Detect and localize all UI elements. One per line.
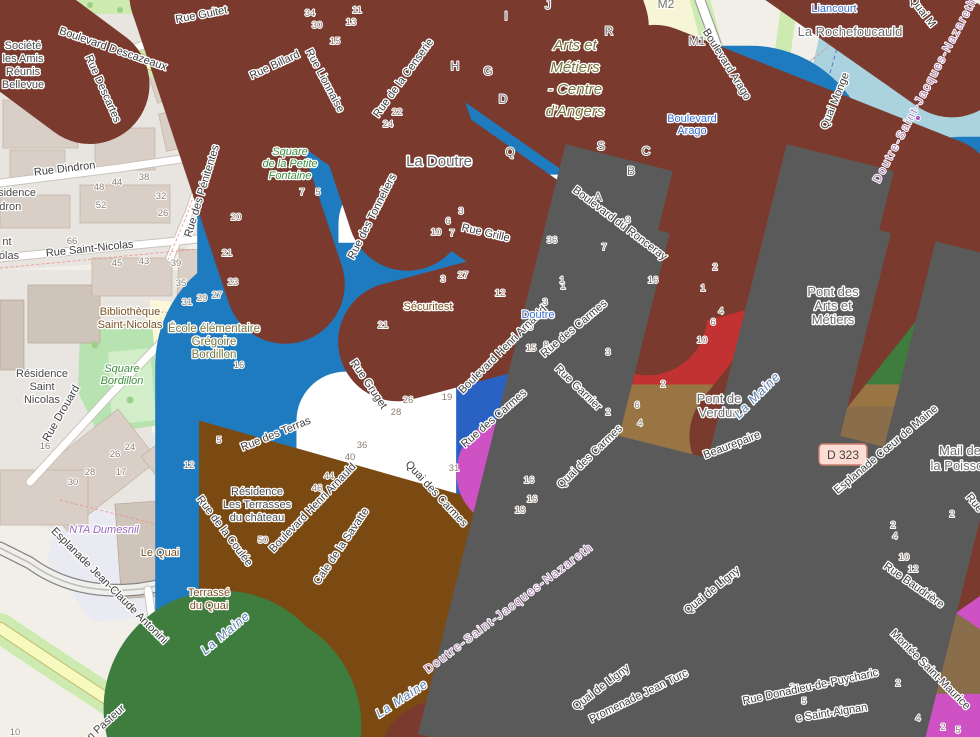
house-number-label: 5 (216, 435, 221, 446)
house-number-label: 35 (176, 278, 187, 289)
green-label-petite-fontaine-3: Fontaine (269, 170, 312, 182)
res-label-residence-dindron-1: Résidence (0, 187, 36, 199)
building-letter-label: B (627, 164, 635, 178)
house-number-label: 2 (605, 407, 610, 418)
res-label-st-nicolas-2: Saint (29, 381, 54, 393)
house-number-label: 34 (305, 8, 316, 19)
house-number-label: 3 (605, 347, 610, 358)
building-letter-label: M2 (658, 0, 675, 11)
res-label-terrasses-1: Résidence (231, 486, 283, 498)
res-label-societe-1: Société (5, 40, 42, 52)
res-label-residence-dindron-2: Dindron (0, 201, 21, 213)
house-number-label: 2 (949, 509, 954, 520)
house-number-label: 7 (449, 228, 454, 239)
house-number-label: 21 (222, 248, 233, 259)
house-number-label: 15 (330, 36, 341, 47)
poi-label-terrasse-2: du Quai (190, 600, 229, 612)
house-number-label: 24 (125, 442, 136, 453)
house-number-label: 27 (458, 270, 469, 281)
res-label-terrasses-2: Les Terrasses (223, 499, 292, 511)
house-number-label: 26 (158, 208, 169, 219)
house-number-label: 2 (712, 262, 717, 273)
building-letter-label: H (451, 59, 460, 73)
transit-label-boulevard-arago-line1: Boulevard (667, 113, 717, 125)
house-number-label: 16 (524, 475, 535, 486)
house-number-label: 2 (895, 678, 900, 689)
house-number-label: 6 (634, 400, 639, 411)
house-number-label: 19 (442, 392, 453, 403)
school-label-ecole-2: Grégoire (192, 336, 237, 348)
place-label-pont-de-verdun-1: Pont de (697, 391, 742, 406)
house-number-label: 12 (908, 564, 919, 575)
house-number-label: 10 (899, 552, 910, 563)
house-number-label: 4 (915, 713, 920, 724)
poi-label-le-quai: Le Quai (141, 547, 180, 559)
house-number-label: 24 (383, 119, 394, 130)
green-label-petite-fontaine-1: Square (272, 146, 307, 158)
house-number-label: 30 (312, 20, 323, 31)
place-label-mail-poissonnerie-2: la Poissonnerie (931, 458, 980, 473)
house-number-label: 16 (234, 360, 245, 371)
place-label-mail-poissonnerie-1: Mail de (939, 443, 980, 458)
house-number-label: 12 (495, 288, 506, 299)
building-letter-label: C (642, 144, 651, 158)
house-number-label: 52 (96, 200, 107, 211)
house-number-label: 10 (431, 227, 442, 238)
house-number-label: 12 (184, 460, 195, 471)
house-number-label: 28 (391, 407, 402, 418)
building-letter-label: J (545, 0, 551, 12)
house-number-label: 26 (403, 395, 414, 406)
res-label-societe-2: les Amis (3, 53, 44, 65)
res-label-terrasses-3: du château (230, 512, 284, 524)
house-number-label: 3 (440, 274, 445, 285)
house-number-label: 48 (94, 182, 105, 193)
campus-label-arts-et-metiers-4: d'Angers (546, 103, 605, 120)
house-number-label: 23 (228, 277, 239, 288)
map-viewport[interactable]: P ♪ (0, 0, 980, 737)
house-number-label: 2 (660, 379, 665, 390)
place-label-la-doutre: La Doutre (406, 153, 472, 170)
house-number-label: 7 (601, 242, 606, 253)
house-number-label: 7 (299, 187, 304, 198)
place-label-pont-des-arts-3: Métiers (812, 312, 855, 327)
school-label-ecole-3: Bordillon (192, 349, 237, 361)
house-number-label: 21 (378, 320, 389, 331)
house-number-label: 45 (112, 258, 123, 269)
house-number-label: 1 (700, 283, 705, 294)
house-number-label: 11 (352, 5, 362, 16)
house-number-label: 31 (182, 297, 193, 308)
house-number-label: 2 (940, 722, 945, 733)
house-number-label: 10 (10, 727, 21, 737)
res-label-societe-4: Bellevue (2, 79, 44, 91)
transit-label-boulevard-arago-line2: Arago (677, 125, 706, 137)
house-number-label: 4 (637, 418, 642, 429)
poi-label-bibliotheque-1: Bibliothèque (100, 306, 161, 318)
building-letter-label: I (504, 9, 507, 23)
transit-label-doutre: Doutre (521, 309, 554, 321)
house-number-label: 22 (392, 107, 403, 118)
house-number-label: 43 (139, 256, 150, 267)
house-number-label: 20 (231, 212, 242, 223)
house-number-label: 31 (449, 463, 460, 474)
map-canvas[interactable]: P ♪ (0, 0, 980, 737)
house-number-label: 18 (515, 505, 526, 516)
res-label-st-nicolas-3: Nicolas (24, 394, 61, 406)
house-number-label: 5 (955, 725, 960, 736)
place-label-pont-des-arts-1: Pont des (807, 284, 859, 299)
house-number-label: 44 (112, 177, 123, 188)
building-letter-label: Q (505, 145, 514, 159)
house-number-label: 36 (357, 440, 368, 451)
res-label-cut-olas: olas (0, 250, 20, 262)
road-shield-d323: D 323 (827, 448, 859, 462)
house-number-label: 29 (197, 293, 208, 304)
res-label-cut-nt: nt (2, 236, 11, 248)
building-letter-label: R (605, 24, 614, 38)
building-letter-label: D (499, 92, 508, 106)
house-number-label: 4 (892, 531, 897, 542)
poi-label-securitest: Sécuritest (404, 301, 453, 313)
house-number-label: 16 (648, 275, 659, 286)
green-label-petite-fontaine-2: de la Petite (262, 158, 317, 170)
res-label-societe-3: Réunis (6, 66, 41, 78)
green-label-square-bordillon-1: Square (104, 363, 139, 375)
building-letter-label: G (483, 64, 492, 78)
campus-label-arts-et-metiers-3: - Centre (548, 81, 602, 98)
house-number-label: 36 (547, 235, 558, 246)
school-label-ecole-1: École élémentaire (168, 322, 260, 335)
house-number-label: 26 (110, 449, 121, 460)
house-number-label: 3 (458, 206, 463, 217)
house-number-label: 6 (710, 317, 715, 328)
res-label-st-nicolas-1: Résidence (16, 368, 68, 380)
building-letter-label: S (597, 139, 605, 153)
house-number-label: 50 (258, 535, 269, 546)
house-number-label: 28 (85, 467, 96, 478)
purple-label-nta-dumesnil: NTA Dumesnil (69, 524, 139, 536)
green-label-square-bordillon-2: Bordillon (101, 375, 144, 387)
house-number-label: 15 (526, 343, 537, 354)
house-number-label: 5 (801, 696, 806, 707)
house-number-label: 16 (527, 494, 538, 505)
house-number-label: 38 (139, 172, 150, 183)
house-number-label: 1 (559, 275, 564, 286)
transit-label-liancourt: Liancourt (811, 3, 856, 15)
house-number-label: 5 (315, 187, 320, 198)
house-number-label: 39 (171, 258, 182, 269)
house-number-label: 13 (346, 17, 357, 28)
place-label-la-rochefoucauld: La Rochefoucauld (798, 24, 903, 39)
poi-label-bibliotheque-2: Saint-Nicolas (98, 319, 163, 331)
house-number-label: 17 (116, 467, 127, 478)
house-number-label: 6 (445, 216, 450, 227)
house-number-label: 27 (212, 290, 223, 301)
house-number-label: 4 (718, 306, 723, 317)
house-number-label: 2 (890, 520, 895, 531)
campus-label-arts-et-metiers-2: Métiers (550, 59, 600, 76)
house-number-label: 10 (697, 335, 708, 346)
house-number-label: 32 (156, 191, 167, 202)
house-number-label: 30 (68, 477, 79, 488)
poi-label-terrasse-1: Terrassé (188, 587, 230, 599)
campus-label-arts-et-metiers-1: Arts et (552, 37, 597, 54)
place-label-pont-des-arts-2: Arts et (814, 298, 852, 313)
